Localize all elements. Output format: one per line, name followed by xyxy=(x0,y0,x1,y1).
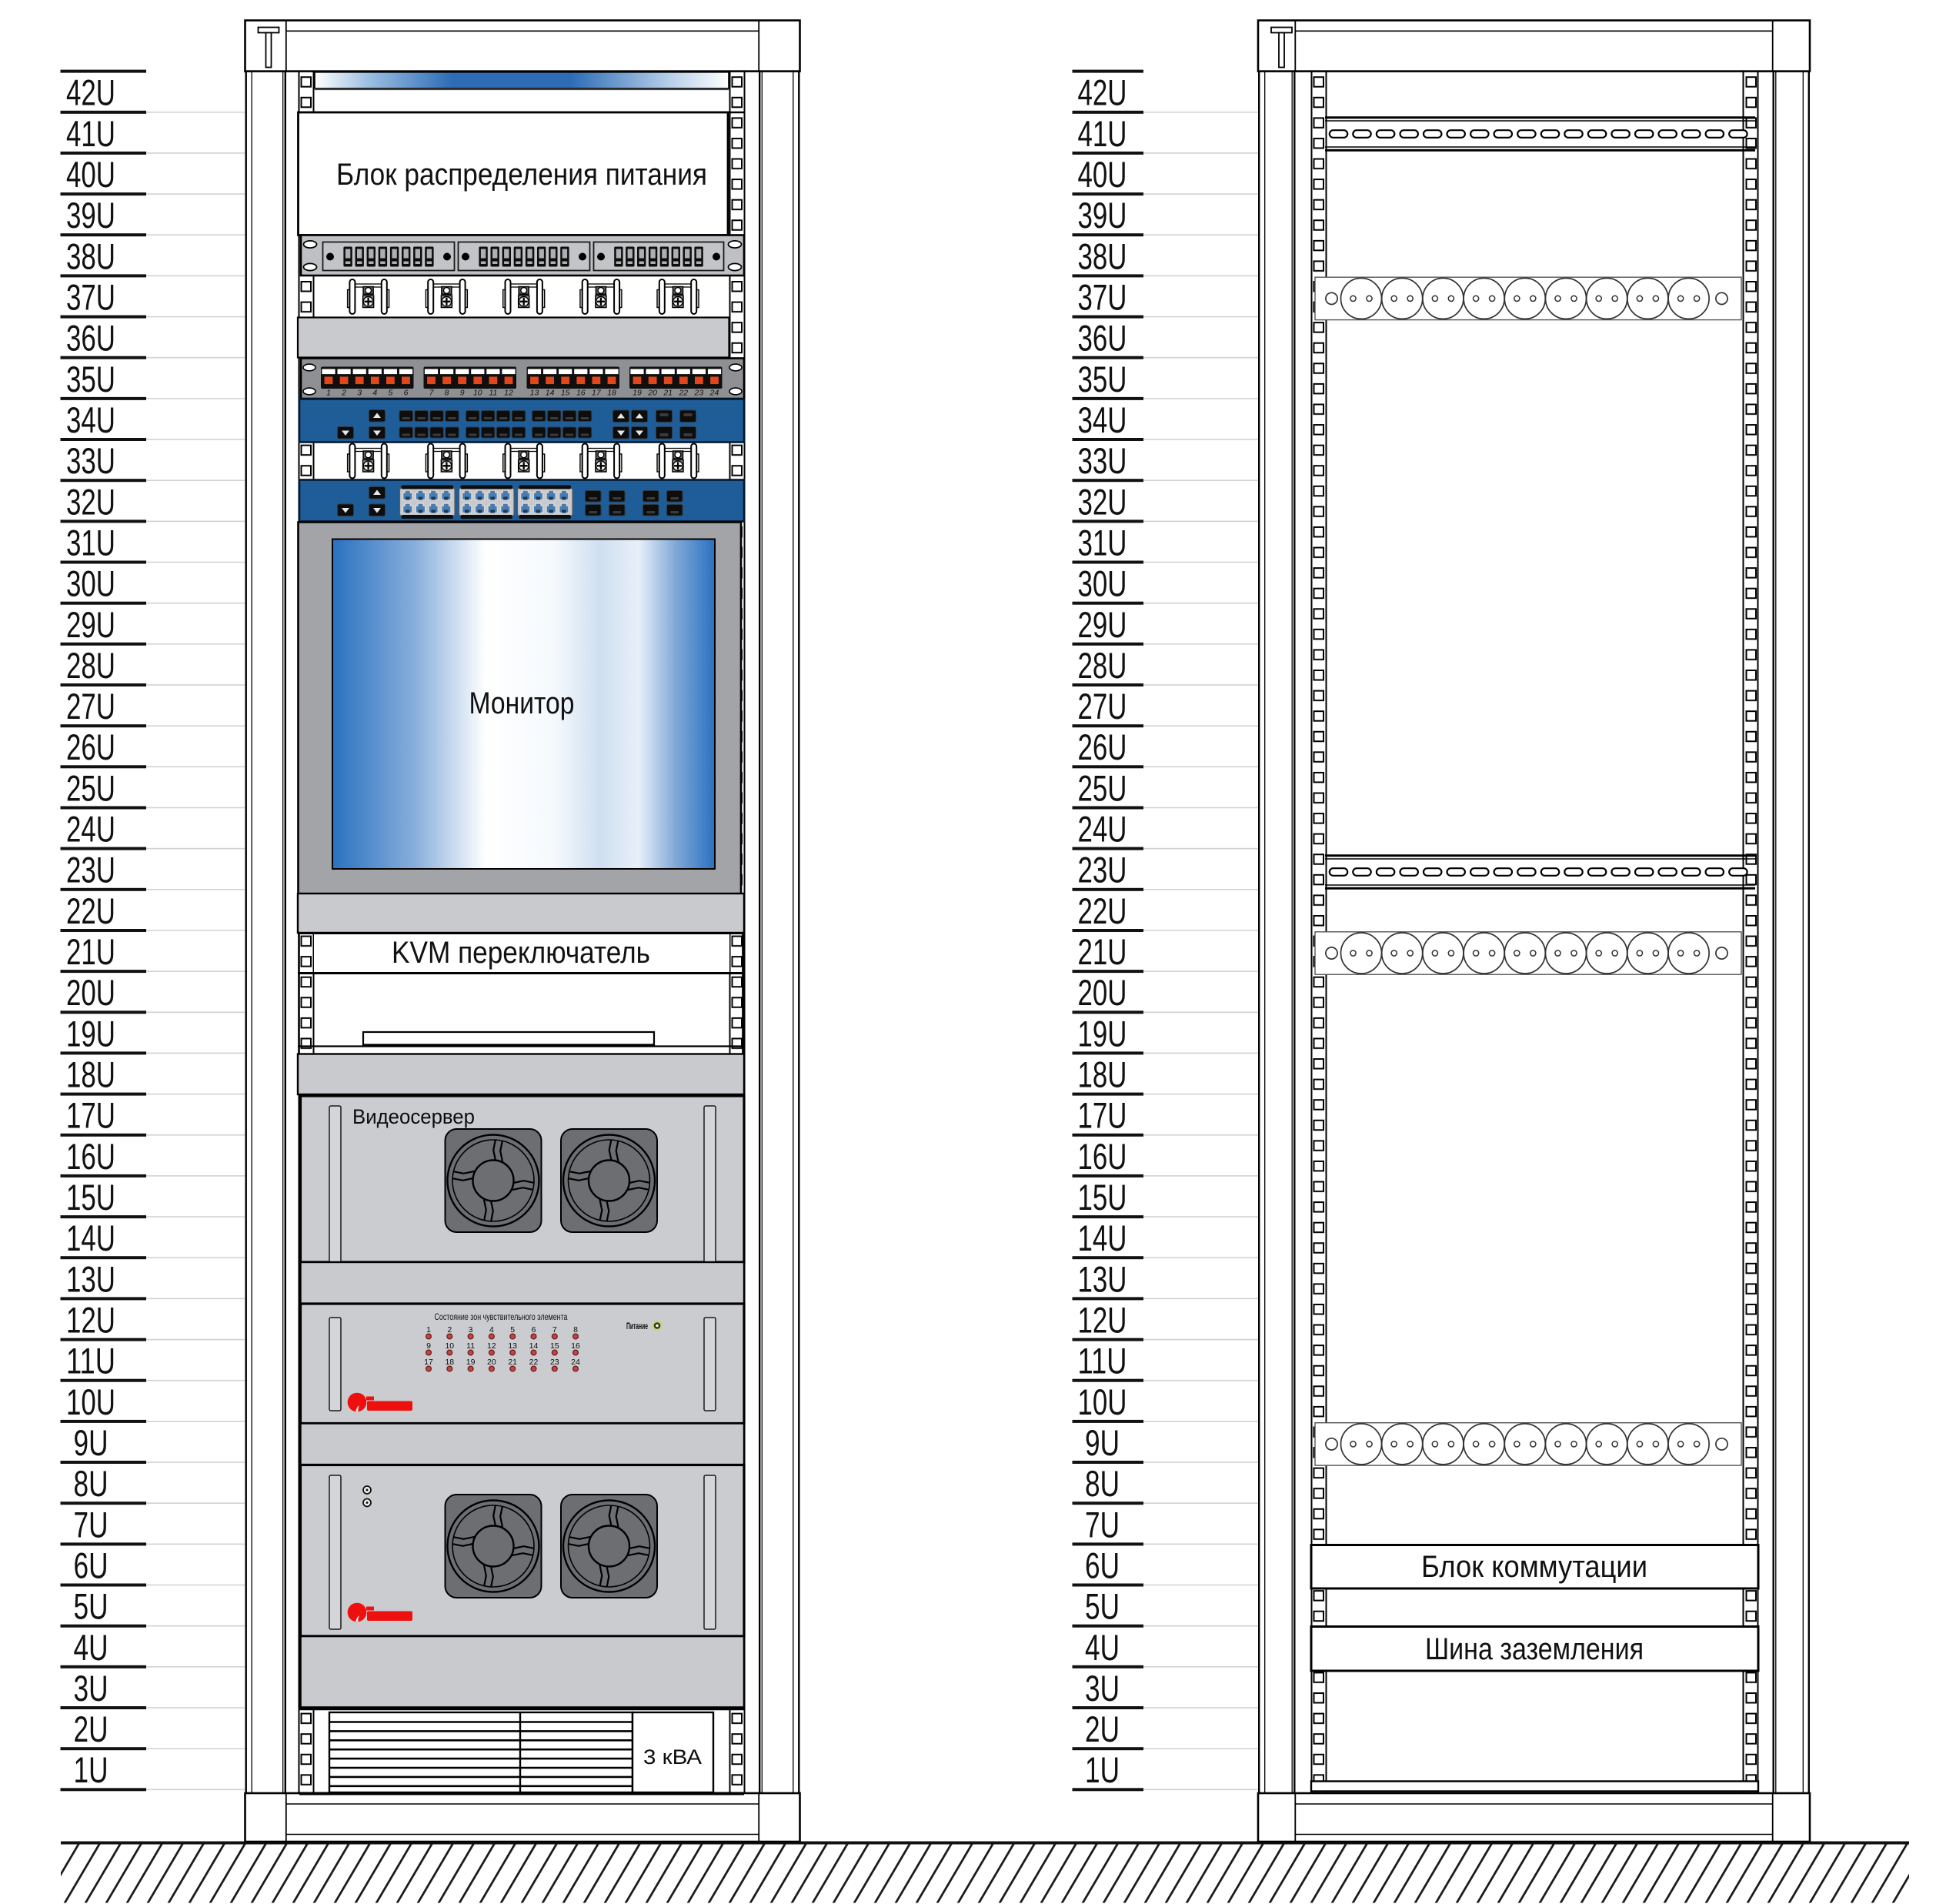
svg-text:10U: 10U xyxy=(66,1381,115,1422)
svg-text:4: 4 xyxy=(372,389,377,398)
svg-text:4: 4 xyxy=(489,1325,494,1334)
svg-text:3U: 3U xyxy=(1085,1668,1120,1709)
svg-text:14U: 14U xyxy=(66,1218,115,1258)
svg-text:13: 13 xyxy=(508,1341,517,1351)
svg-text:42U: 42U xyxy=(66,72,115,113)
svg-text:16U: 16U xyxy=(1078,1136,1127,1177)
svg-text:23: 23 xyxy=(550,1358,559,1367)
svg-text:Блок коммутации: Блок коммутации xyxy=(1421,1550,1647,1584)
svg-text:26U: 26U xyxy=(1078,727,1127,767)
svg-text:33U: 33U xyxy=(1078,440,1127,481)
svg-text:6U: 6U xyxy=(1085,1545,1120,1585)
svg-text:22U: 22U xyxy=(1078,890,1127,931)
svg-text:8: 8 xyxy=(445,389,449,398)
svg-text:Состояние зон чувствительног: Состояние зон чувствительного элемента xyxy=(435,1313,568,1322)
svg-text:20U: 20U xyxy=(66,972,115,1013)
svg-text:32U: 32U xyxy=(1078,481,1127,522)
svg-text:19: 19 xyxy=(466,1358,476,1367)
svg-text:18: 18 xyxy=(445,1358,454,1367)
svg-text:8U: 8U xyxy=(74,1463,108,1504)
svg-text:16U: 16U xyxy=(66,1136,115,1177)
svg-text:10U: 10U xyxy=(1078,1381,1127,1422)
svg-text:15U: 15U xyxy=(1078,1177,1127,1218)
svg-text:Монитор: Монитор xyxy=(469,686,575,720)
svg-text:11: 11 xyxy=(489,389,497,398)
svg-text:39U: 39U xyxy=(1078,195,1127,235)
svg-text:12U: 12U xyxy=(66,1300,115,1341)
svg-text:Питание: Питание xyxy=(626,1322,648,1331)
svg-text:30U: 30U xyxy=(1078,563,1127,604)
svg-text:40U: 40U xyxy=(66,154,115,195)
svg-text:Видеосервер: Видеосервер xyxy=(352,1105,475,1128)
svg-text:18U: 18U xyxy=(1078,1054,1127,1095)
svg-text:2U: 2U xyxy=(74,1709,108,1749)
svg-text:1: 1 xyxy=(326,389,331,398)
svg-text:13U: 13U xyxy=(1078,1258,1127,1299)
svg-text:4U: 4U xyxy=(1085,1627,1120,1668)
svg-text:21: 21 xyxy=(508,1358,517,1367)
svg-text:20: 20 xyxy=(487,1358,496,1367)
svg-text:21U: 21U xyxy=(1078,931,1127,972)
svg-text:16: 16 xyxy=(571,1341,580,1351)
svg-text:32U: 32U xyxy=(66,481,115,522)
svg-text:24: 24 xyxy=(571,1358,580,1367)
svg-text:12: 12 xyxy=(487,1341,496,1351)
svg-text:9U: 9U xyxy=(74,1422,108,1463)
svg-text:28U: 28U xyxy=(66,645,115,686)
svg-text:18: 18 xyxy=(607,389,616,398)
svg-text:15: 15 xyxy=(550,1341,559,1351)
svg-text:5U: 5U xyxy=(74,1586,108,1627)
svg-text:6: 6 xyxy=(404,389,409,398)
svg-text:7U: 7U xyxy=(1085,1504,1120,1545)
svg-text:28U: 28U xyxy=(1078,645,1127,686)
svg-text:23U: 23U xyxy=(66,850,115,890)
svg-text:40U: 40U xyxy=(1078,154,1127,195)
svg-text:12U: 12U xyxy=(1078,1300,1127,1341)
svg-text:27U: 27U xyxy=(1078,686,1127,727)
svg-text:16: 16 xyxy=(576,389,586,398)
svg-text:27U: 27U xyxy=(66,686,115,727)
svg-text:38U: 38U xyxy=(66,235,115,276)
svg-text:1: 1 xyxy=(426,1325,431,1334)
svg-text:33U: 33U xyxy=(66,440,115,481)
svg-text:37U: 37U xyxy=(66,277,115,318)
svg-text:9: 9 xyxy=(426,1341,431,1351)
svg-text:23: 23 xyxy=(694,389,704,398)
svg-text:24U: 24U xyxy=(1078,809,1127,850)
svg-text:22U: 22U xyxy=(66,890,115,931)
svg-text:15U: 15U xyxy=(66,1177,115,1218)
svg-text:19: 19 xyxy=(633,389,642,398)
svg-text:31U: 31U xyxy=(66,522,115,563)
svg-text:18U: 18U xyxy=(66,1054,115,1095)
svg-text:9: 9 xyxy=(460,389,465,398)
svg-text:34U: 34U xyxy=(66,399,115,440)
svg-text:24U: 24U xyxy=(66,809,115,850)
svg-text:38U: 38U xyxy=(1078,235,1127,276)
svg-text:7U: 7U xyxy=(74,1504,108,1545)
svg-text:1U: 1U xyxy=(74,1749,108,1790)
svg-text:8: 8 xyxy=(573,1325,578,1334)
svg-text:13: 13 xyxy=(530,389,539,398)
svg-text:21U: 21U xyxy=(66,931,115,972)
svg-text:6U: 6U xyxy=(74,1545,108,1585)
svg-text:15: 15 xyxy=(561,389,570,398)
svg-text:24: 24 xyxy=(709,389,719,398)
svg-text:22: 22 xyxy=(678,389,688,398)
svg-text:3: 3 xyxy=(357,389,362,398)
svg-text:5: 5 xyxy=(510,1325,515,1334)
svg-text:7: 7 xyxy=(552,1325,557,1334)
svg-text:13U: 13U xyxy=(66,1258,115,1299)
svg-text:17: 17 xyxy=(592,389,602,398)
svg-text:12: 12 xyxy=(504,389,513,398)
svg-text:11U: 11U xyxy=(1078,1341,1127,1381)
svg-text:2: 2 xyxy=(341,389,346,398)
svg-text:17: 17 xyxy=(424,1358,433,1367)
svg-text:19U: 19U xyxy=(66,1013,115,1054)
svg-text:Шина заземления: Шина заземления xyxy=(1425,1632,1644,1666)
svg-text:35U: 35U xyxy=(66,359,115,399)
svg-text:25U: 25U xyxy=(1078,767,1127,808)
svg-text:35U: 35U xyxy=(1078,359,1127,399)
svg-text:41U: 41U xyxy=(66,113,115,154)
svg-text:25U: 25U xyxy=(66,767,115,808)
svg-text:8U: 8U xyxy=(1085,1463,1120,1504)
svg-text:10: 10 xyxy=(473,389,482,398)
svg-text:11: 11 xyxy=(466,1341,475,1351)
svg-text:11U: 11U xyxy=(66,1341,115,1381)
svg-text:KVM переключатель: KVM переключатель xyxy=(392,936,650,970)
svg-text:Блок распределения питания: Блок распределения питания xyxy=(336,158,707,192)
svg-text:14: 14 xyxy=(546,389,555,398)
svg-text:41U: 41U xyxy=(1078,113,1127,154)
svg-text:10: 10 xyxy=(445,1341,454,1351)
svg-text:36U: 36U xyxy=(66,318,115,359)
svg-text:23U: 23U xyxy=(1078,850,1127,890)
svg-text:6: 6 xyxy=(532,1325,536,1334)
svg-text:22: 22 xyxy=(529,1358,539,1367)
svg-text:5U: 5U xyxy=(1085,1586,1120,1627)
svg-text:1U: 1U xyxy=(1085,1749,1120,1790)
svg-text:14U: 14U xyxy=(1078,1218,1127,1258)
svg-text:3 кВА: 3 кВА xyxy=(643,1745,702,1769)
svg-text:2: 2 xyxy=(447,1325,452,1334)
svg-text:2U: 2U xyxy=(1085,1709,1120,1749)
svg-text:36U: 36U xyxy=(1078,318,1127,359)
svg-text:17U: 17U xyxy=(1078,1095,1127,1136)
svg-text:29U: 29U xyxy=(66,604,115,645)
svg-text:30U: 30U xyxy=(66,563,115,604)
svg-text:9U: 9U xyxy=(1085,1422,1120,1463)
svg-text:19U: 19U xyxy=(1078,1013,1127,1054)
svg-text:34U: 34U xyxy=(1078,399,1127,440)
svg-text:3U: 3U xyxy=(74,1668,108,1709)
svg-text:39U: 39U xyxy=(66,195,115,235)
svg-text:4U: 4U xyxy=(74,1627,108,1668)
svg-text:31U: 31U xyxy=(1078,522,1127,563)
svg-text:14: 14 xyxy=(529,1341,539,1351)
svg-text:3: 3 xyxy=(469,1325,473,1334)
svg-text:29U: 29U xyxy=(1078,604,1127,645)
svg-text:20: 20 xyxy=(647,389,657,398)
svg-text:20U: 20U xyxy=(1078,972,1127,1013)
svg-text:42U: 42U xyxy=(1078,72,1127,113)
svg-text:26U: 26U xyxy=(66,727,115,767)
svg-text:5: 5 xyxy=(388,389,392,398)
svg-text:37U: 37U xyxy=(1078,277,1127,318)
svg-text:17U: 17U xyxy=(66,1095,115,1136)
svg-text:21: 21 xyxy=(663,389,673,398)
